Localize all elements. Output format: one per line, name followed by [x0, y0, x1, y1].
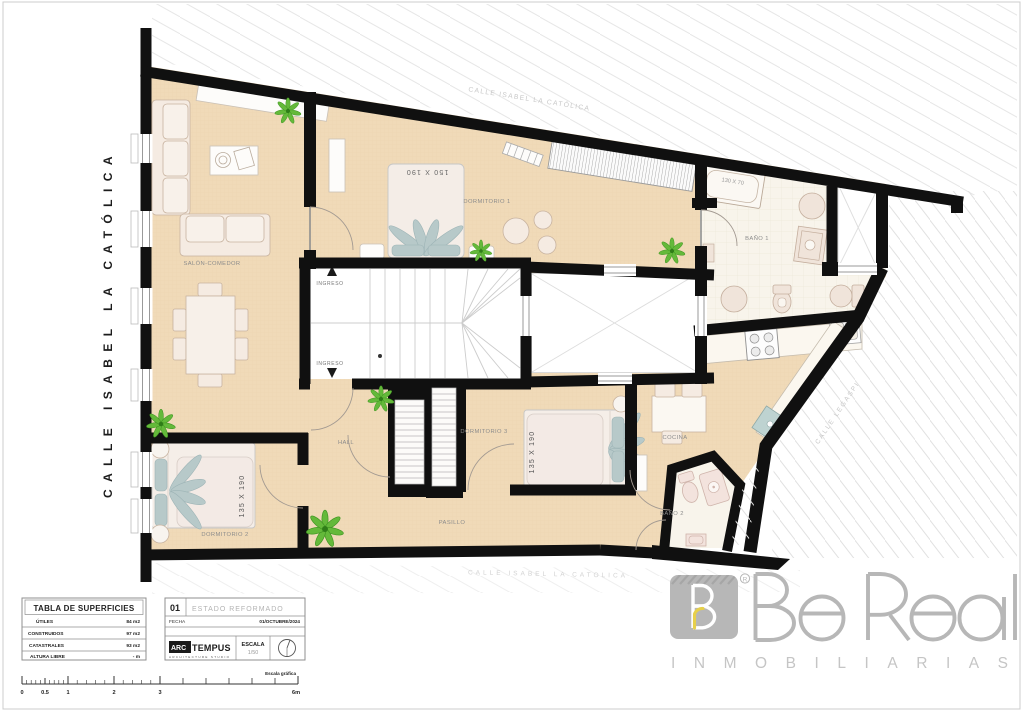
- svg-text:1/50: 1/50: [248, 650, 259, 656]
- svg-text:97 m2: 97 m2: [126, 631, 140, 637]
- svg-text:ARCHITECTURE STUDIO: ARCHITECTURE STUDIO: [169, 655, 230, 659]
- svg-text:ÚTILES: ÚTILES: [36, 618, 54, 625]
- svg-text:CATASTRALES: CATASTRALES: [29, 643, 65, 649]
- svg-text:ARC: ARC: [171, 645, 186, 652]
- svg-text:INGRESO: INGRESO: [316, 281, 343, 287]
- svg-text:135 X 190: 135 X 190: [529, 431, 536, 474]
- svg-text:PASILLO: PASILLO: [439, 520, 466, 526]
- svg-text:1: 1: [66, 690, 69, 696]
- svg-text:TEMPUS: TEMPUS: [192, 643, 231, 653]
- svg-text:84 m2: 84 m2: [126, 619, 140, 625]
- svg-text:ALTURA LIBRE: ALTURA LIBRE: [30, 654, 66, 660]
- svg-text:0: 0: [20, 690, 23, 696]
- svg-text:ESCALA: ESCALA: [242, 642, 265, 648]
- svg-text:COCINA: COCINA: [663, 435, 688, 441]
- svg-text:0.5: 0.5: [41, 690, 49, 696]
- svg-text:01/OCTUBRE/2024: 01/OCTUBRE/2024: [259, 619, 300, 624]
- svg-text:ESTADO REFORMADO: ESTADO REFORMADO: [192, 606, 284, 613]
- svg-text:HALL: HALL: [338, 440, 354, 446]
- svg-text:150 X 190: 150 X 190: [406, 168, 449, 175]
- svg-text:FECHA: FECHA: [169, 619, 186, 625]
- svg-text:- m: - m: [133, 655, 140, 660]
- svg-text:01: 01: [170, 603, 180, 613]
- svg-text:DORMITORIO 1: DORMITORIO 1: [463, 199, 510, 205]
- svg-text:BAÑO 1: BAÑO 1: [745, 235, 769, 242]
- svg-text:R: R: [743, 577, 748, 584]
- svg-text:Escala gráfica: Escala gráfica: [265, 671, 296, 676]
- svg-text:93 m2: 93 m2: [126, 643, 140, 649]
- svg-text:DORMITORIO 2: DORMITORIO 2: [201, 532, 248, 538]
- svg-text:DORMITORIO 3: DORMITORIO 3: [460, 429, 507, 435]
- svg-text:SALÓN-COMEDOR: SALÓN-COMEDOR: [183, 260, 240, 267]
- svg-text:135 X 190: 135 X 190: [239, 475, 246, 518]
- svg-text:2: 2: [112, 690, 115, 696]
- svg-text:6m: 6m: [292, 690, 300, 696]
- svg-text:BAÑO 2: BAÑO 2: [660, 510, 684, 517]
- svg-text:CALLE ISABEL LA CATÓLICA: CALLE ISABEL LA CATÓLICA: [100, 150, 115, 498]
- svg-text:TABLA DE SUPERFICIES: TABLA DE SUPERFICIES: [33, 604, 134, 613]
- svg-text:3: 3: [158, 690, 161, 696]
- svg-text:INGRESO: INGRESO: [316, 361, 343, 367]
- svg-text:CONSTRUIDOS: CONSTRUIDOS: [28, 631, 64, 637]
